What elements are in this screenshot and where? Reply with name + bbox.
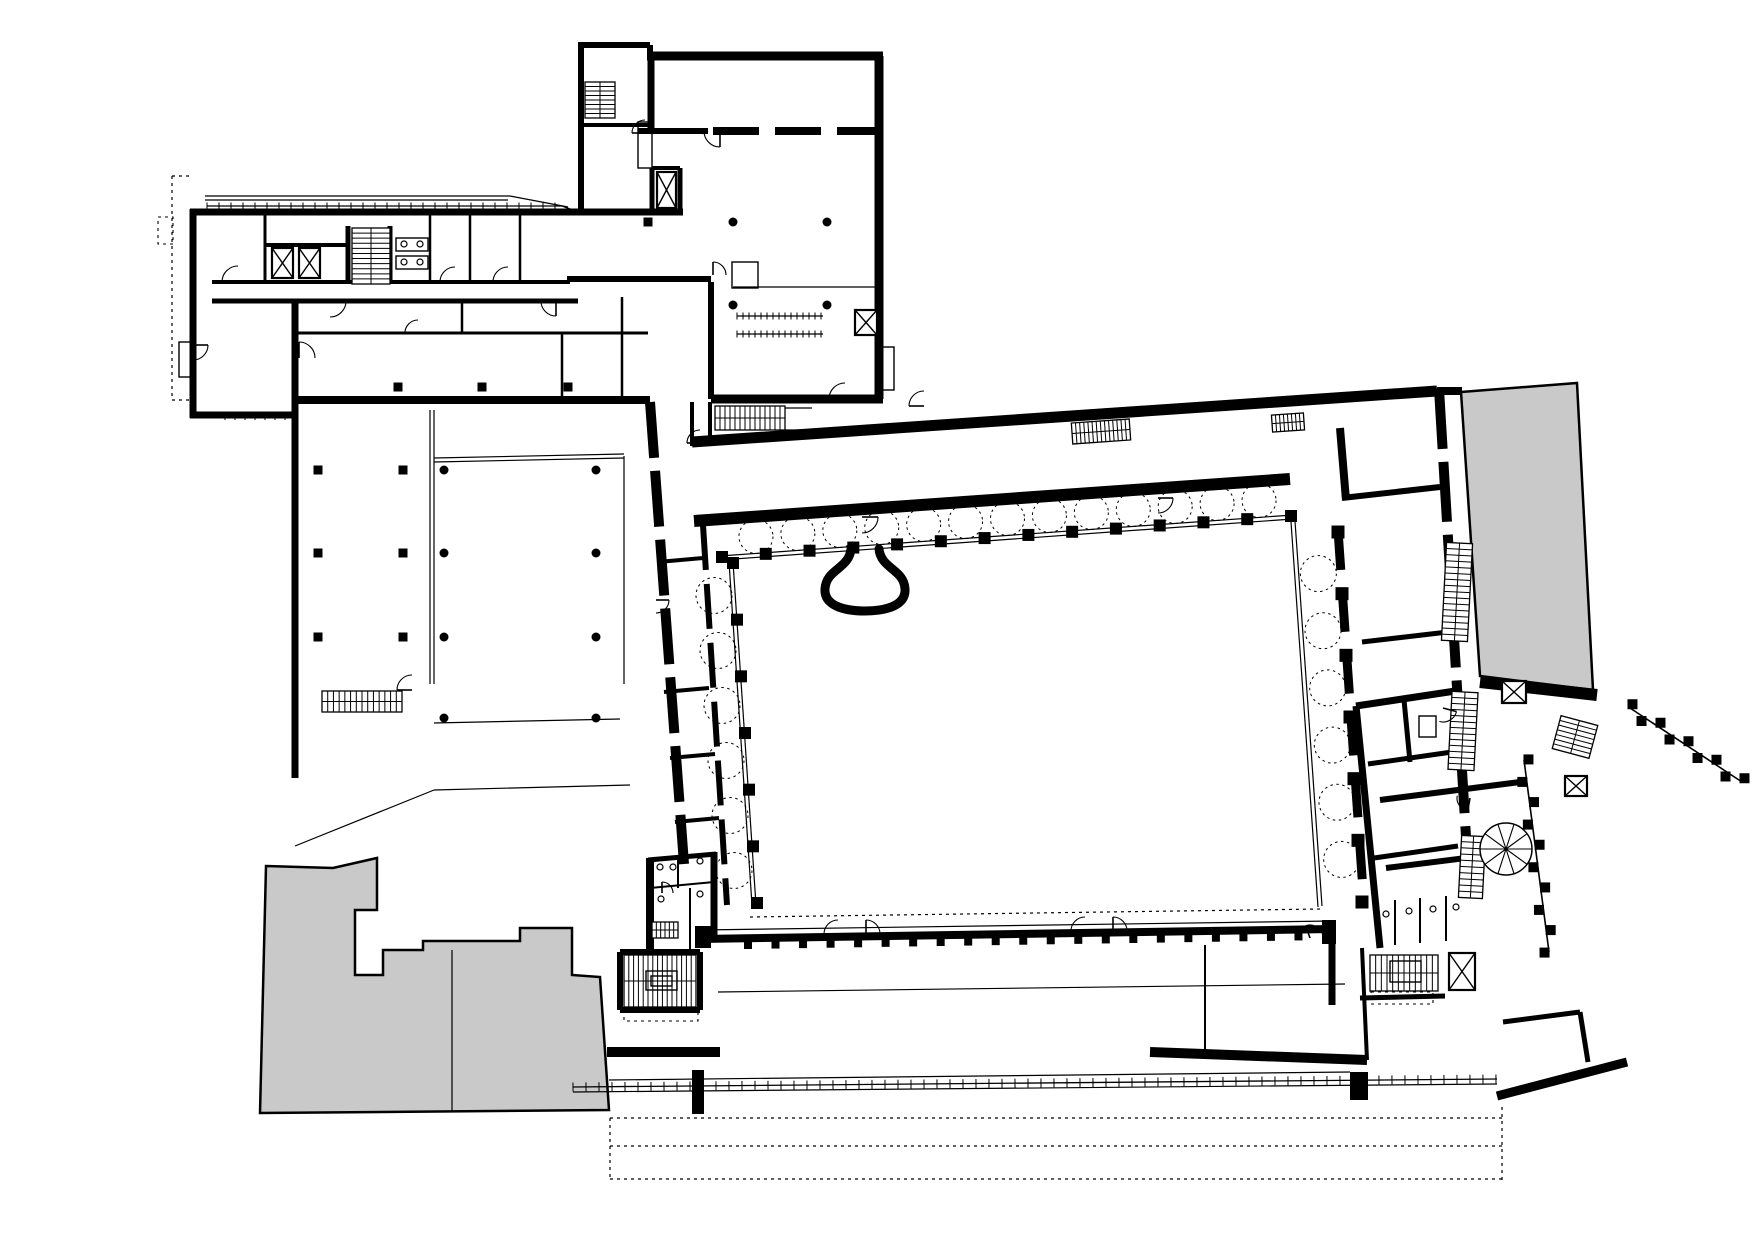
wall: [1404, 700, 1410, 762]
wall-block: [695, 926, 711, 948]
wall: [1497, 1062, 1627, 1096]
arcade-pier: [935, 535, 947, 547]
wc-fixture: [1453, 904, 1459, 910]
wall: [650, 402, 684, 864]
thin-line: [434, 785, 630, 790]
arcade-pier: [804, 545, 816, 557]
courtyard-apse: [825, 549, 905, 611]
wc-fixture: [417, 259, 423, 265]
colonnade-column: [1047, 936, 1055, 944]
staircase: [1271, 413, 1304, 432]
arcade-pier: [739, 727, 751, 739]
thin-line: [434, 454, 624, 458]
elevator: [1502, 681, 1526, 703]
arcade-pier: [1348, 772, 1361, 785]
arcade-pier: [743, 784, 755, 796]
colonnade-column: [1129, 935, 1137, 943]
wall: [1360, 996, 1445, 998]
staircase: [652, 922, 678, 938]
colonnade-column: [1102, 935, 1110, 943]
adjacent-building-north-east: [1461, 383, 1593, 690]
square-column: [564, 383, 573, 392]
wc-fixture: [697, 858, 703, 864]
staircase: [585, 82, 615, 118]
staircase: [715, 406, 785, 430]
zigzag-tooth: [1523, 754, 1533, 764]
colonnade-column: [1212, 934, 1220, 942]
colonnade-column: [1157, 935, 1165, 943]
arcade-pier: [1022, 529, 1034, 541]
arcade-pier: [1197, 516, 1209, 528]
zigzag-tooth: [1665, 735, 1675, 745]
keyhole-layer: [825, 549, 905, 611]
dotted-line: [750, 909, 1320, 917]
door-arc: [397, 675, 412, 690]
arcade-pier: [760, 548, 772, 560]
staircase: [1552, 716, 1598, 759]
zigzag-tooth: [1529, 797, 1539, 807]
zigzag-tooth: [1627, 699, 1637, 709]
zigzag-tooth: [1528, 862, 1538, 872]
zigzag-tooth: [1535, 840, 1545, 850]
wall-block: [692, 1070, 704, 1114]
thin-line: [1291, 522, 1318, 907]
vault-bay: [1116, 493, 1150, 527]
wall: [1356, 706, 1380, 948]
round-column: [440, 549, 449, 558]
wc-fixture: [401, 259, 407, 265]
vault-bay: [708, 743, 744, 779]
vault-bay: [991, 502, 1025, 536]
zigzag-tooth: [1637, 716, 1647, 726]
round-column: [592, 549, 601, 558]
arcade-pier: [1332, 526, 1345, 539]
wc-fixture: [1406, 908, 1412, 914]
zigzag-tooth: [1534, 905, 1544, 915]
columns-layer: [314, 218, 832, 723]
wc-fixture: [417, 241, 423, 247]
elevator: [272, 248, 293, 278]
square-column: [478, 383, 487, 392]
door-arc: [909, 391, 924, 406]
vault-bay: [1310, 670, 1346, 706]
staircase: [1448, 691, 1478, 770]
staircase: [322, 691, 402, 712]
wc-fixture: [401, 241, 407, 247]
wc-fixture: [670, 864, 676, 870]
adjacent-building-south-west: [260, 858, 609, 1113]
wc-fixture: [658, 896, 664, 902]
round-column: [729, 218, 738, 227]
wall: [1580, 1012, 1588, 1062]
elevator: [1565, 776, 1587, 796]
staircase: [1071, 419, 1130, 444]
colonnade-column: [854, 939, 862, 947]
wall: [1362, 632, 1448, 642]
thin-line: [718, 984, 1345, 992]
staircase: [352, 228, 390, 284]
wc-fixture: [1430, 906, 1436, 912]
colonnade-column: [1294, 932, 1302, 940]
wall: [1374, 846, 1458, 858]
arcade-pier: [727, 557, 739, 569]
door-arc: [1158, 498, 1173, 513]
elevator: [855, 310, 877, 335]
colonnade-column: [744, 941, 752, 949]
square-column: [314, 466, 323, 475]
zigzag-tooth: [1523, 820, 1533, 830]
zigzag-tooth: [1721, 772, 1731, 782]
staircase: [1441, 542, 1472, 641]
fixture-rect: [732, 262, 758, 288]
arcade-pier: [1154, 519, 1166, 531]
arcade-pier: [747, 840, 759, 852]
square-column: [314, 633, 323, 642]
vault-bay: [1242, 484, 1276, 518]
zigzag-tooth: [1683, 736, 1693, 746]
thin-line: [295, 790, 434, 846]
colonnade-column: [909, 938, 917, 946]
wc-fixture: [1383, 911, 1389, 917]
wall: [1150, 1052, 1367, 1060]
wall: [1380, 782, 1520, 800]
round-column: [440, 466, 449, 475]
colonnade-column: [799, 940, 807, 948]
wall: [703, 525, 727, 905]
door-arc: [299, 342, 315, 358]
vault-bay: [949, 505, 983, 539]
door-arc: [493, 267, 508, 282]
zigzag-tooth: [1655, 718, 1665, 728]
wc-fixture: [657, 864, 663, 870]
vault-bay: [1032, 499, 1066, 533]
arcade-pier: [751, 897, 763, 909]
wall: [694, 479, 1290, 521]
vault-bay: [1314, 727, 1350, 763]
zigzag-tooth: [1540, 948, 1550, 958]
arcade-pier: [1336, 587, 1349, 600]
wall: [700, 929, 1332, 939]
colonnade-column: [937, 938, 945, 946]
arcade-pier: [1241, 513, 1253, 525]
colonnade-column: [1267, 933, 1275, 941]
arcade-pier: [1066, 526, 1078, 538]
vault-bay: [1158, 490, 1192, 524]
door-arc: [713, 262, 726, 275]
square-column: [394, 383, 403, 392]
door-arc: [862, 517, 878, 533]
round-column: [729, 301, 738, 310]
vault-bay: [1305, 613, 1341, 649]
dashed-rect: [158, 217, 173, 244]
floorplan-svg: [0, 0, 1754, 1241]
vault-bay: [1074, 496, 1108, 530]
colonnade-column: [1322, 932, 1330, 940]
thin-line: [609, 1072, 1350, 1080]
arcade-pier: [1340, 649, 1353, 662]
vault-bay: [1300, 556, 1336, 592]
thin-line: [434, 458, 624, 462]
round-column: [592, 466, 601, 475]
zigzag-tooth: [1517, 777, 1527, 787]
arcade-pier: [735, 670, 747, 682]
zigzag-walls-layer: [1517, 699, 1749, 957]
zigzag-tooth: [1540, 882, 1550, 892]
colonnade-column: [1239, 933, 1247, 941]
arcade-pier: [1110, 523, 1122, 535]
wall: [1356, 690, 1462, 706]
colonnade-column: [827, 940, 835, 948]
square-column: [314, 549, 323, 558]
round-column: [440, 633, 449, 642]
vault-bay: [1319, 784, 1355, 820]
door-arc: [824, 920, 838, 934]
door-arc: [440, 267, 455, 282]
cloister-vaults-layer: [696, 484, 1360, 889]
thin-line: [1295, 521, 1322, 906]
zigzag-tooth: [1711, 755, 1721, 765]
arcade-pier: [979, 532, 991, 544]
square-column: [399, 466, 408, 475]
arcade-pier: [1285, 510, 1297, 522]
colonnade-column: [1019, 937, 1027, 945]
colonnade-column: [1184, 934, 1192, 942]
round-column: [823, 301, 832, 310]
zigzag-tooth: [1546, 925, 1556, 935]
spiral-stair-layer: [1480, 823, 1532, 875]
colonnade-column: [992, 937, 1000, 945]
fixture-rect: [1419, 716, 1436, 737]
vault-bay: [1200, 487, 1234, 521]
wall: [1362, 948, 1367, 1060]
square-column: [399, 633, 408, 642]
door-arc: [222, 266, 238, 282]
arcade-pier: [716, 551, 728, 563]
wall: [1503, 1012, 1580, 1022]
colonnade-column: [1074, 936, 1082, 944]
arcade-pier: [731, 614, 743, 626]
floorplan-page: [0, 0, 1754, 1241]
wall: [1340, 428, 1346, 500]
vault-bay: [696, 578, 732, 614]
round-column: [592, 714, 601, 723]
elevator: [657, 172, 676, 208]
vault-bay: [704, 688, 740, 724]
colonnade-column: [772, 941, 780, 949]
wall: [1342, 487, 1440, 498]
wc-fixture: [697, 891, 703, 897]
round-column: [823, 218, 832, 227]
zigzag-tooth: [1693, 753, 1703, 763]
vault-bay: [712, 798, 748, 834]
elevator: [299, 248, 320, 278]
arcade-pier: [1356, 896, 1369, 909]
square-column: [644, 218, 653, 227]
arcade-pier: [1352, 834, 1365, 847]
vault-bay: [700, 633, 736, 669]
arcade-pier: [1344, 711, 1357, 724]
colonnade-column: [964, 938, 972, 946]
round-column: [440, 714, 449, 723]
elevator: [1449, 953, 1475, 990]
square-column: [399, 549, 408, 558]
door-arc: [405, 320, 418, 333]
wall: [648, 854, 716, 860]
colonnade-column: [882, 939, 890, 947]
round-column: [592, 633, 601, 642]
zigzag-tooth: [1739, 773, 1749, 783]
arcade-pier: [891, 538, 903, 550]
wall: [650, 882, 714, 888]
staircase: [624, 955, 696, 1007]
